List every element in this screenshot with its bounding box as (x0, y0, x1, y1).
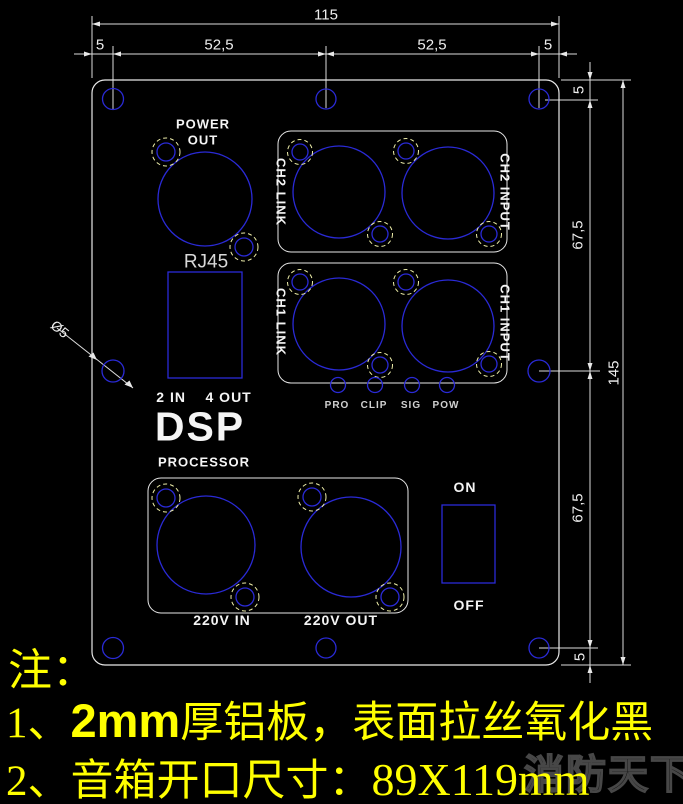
ch2-connector-group (278, 131, 507, 252)
led-label-sig: SIG (401, 401, 421, 411)
screw-hole (236, 588, 254, 606)
v220-in-label: 220V IN (193, 613, 251, 627)
arrowhead (588, 665, 593, 673)
dim-top-right-span: 52,5 (417, 38, 446, 53)
led-label-pow: POW (433, 401, 460, 411)
led-hole-clip (368, 378, 383, 393)
screw-hole-dashed (298, 483, 326, 511)
arrowhead (588, 100, 593, 108)
note1-text: 厚铝板，表面拉丝氧化黑 (180, 700, 653, 747)
dim-top-left-margin: 5 (96, 38, 104, 53)
arrowhead (559, 52, 567, 57)
screw-hole-dashed (152, 484, 180, 512)
ch1-link-label: CH1 LINK (275, 288, 288, 356)
leader-arrowhead (125, 381, 134, 389)
arrowhead (551, 22, 559, 27)
note-line-1: 1、2mm厚铝板，表面拉丝氧化黑 (6, 688, 653, 750)
arrowhead (621, 657, 626, 665)
screw-hole (398, 143, 414, 159)
screw-hole (235, 238, 253, 256)
led-label-pro: PRO (325, 401, 350, 411)
screw-hole-dashed (288, 270, 313, 295)
processor-label: PROCESSOR (158, 456, 250, 469)
rj45-cutout (168, 272, 242, 378)
rj45-label: RJ45 (184, 253, 228, 272)
arrowhead (588, 363, 593, 371)
ch2-link-label: CH2 LINK (275, 158, 288, 226)
screw-hole-dashed (394, 139, 419, 164)
screw-hole-dashed (288, 140, 313, 165)
arrowhead (326, 52, 334, 57)
note2-size-value: 89X119mm (372, 754, 590, 804)
led-label-clip: CLIP (361, 401, 388, 411)
arrowhead (318, 52, 326, 57)
arrowhead (531, 52, 539, 57)
ch2-link-xlr-cutout (293, 146, 385, 238)
dim-right-bottom-margin: 5 (573, 653, 588, 661)
ch1-input-label: CH1 INPUT (499, 284, 512, 362)
arrowhead (113, 52, 121, 57)
v220-out-label: 220V OUT (304, 613, 378, 627)
power-out-connector (152, 138, 258, 261)
screw-hole (398, 274, 414, 290)
screw-hole-dashed (152, 138, 180, 166)
power-out-label-line1: POWER (176, 118, 230, 131)
mounting-hole-mid-left (102, 360, 124, 382)
screw-hole-dashed (394, 270, 419, 295)
arrowhead (588, 72, 593, 80)
screw-hole (381, 588, 399, 606)
ch1-input-xlr-cutout (402, 280, 494, 372)
led-holes (331, 378, 455, 393)
xlr-cutout (158, 152, 252, 246)
note1-number: 1、 (6, 700, 71, 747)
dimension-lines (57, 16, 631, 683)
ch1-connector-group (278, 263, 507, 383)
screw-hole (157, 489, 175, 507)
arrowhead (84, 52, 92, 57)
screw-hole (372, 357, 388, 373)
led-hole-pro (331, 378, 346, 393)
note1-thickness: 2mm (71, 694, 181, 747)
dim-right-total: 145 (607, 360, 622, 385)
cad-drawing-canvas: 115 5 52,5 52,5 5 5 67,5 145 67,5 5 Ø5 P… (0, 0, 683, 804)
power-connector-group (148, 478, 408, 613)
screw-hole-dashed (231, 583, 259, 611)
led-hole-sig (405, 378, 420, 393)
screw-hole (481, 356, 497, 372)
dim-top-left-span: 52,5 (204, 38, 233, 53)
power-switch-cutout (442, 505, 495, 583)
note2-text: 音箱开口尺寸： (71, 758, 372, 804)
screw-hole (292, 274, 308, 290)
dim-right-upper-span: 67,5 (571, 220, 586, 249)
switch-on-label: ON (454, 480, 477, 494)
dim-right-lower-span: 67,5 (571, 493, 586, 522)
mounting-hole-bottom-center (316, 638, 336, 658)
screw-hole (372, 226, 388, 242)
ch2-input-xlr-cutout (402, 147, 494, 239)
switch-off-label: OFF (454, 598, 485, 612)
mounting-holes (102, 89, 550, 659)
dsp-label: DSP (155, 407, 245, 448)
ch1-link-xlr-cutout (293, 278, 385, 370)
io-count-label: 2 IN 4 OUT (156, 390, 251, 404)
arrowhead (92, 22, 100, 27)
note2-number: 2、 (6, 758, 71, 804)
screw-hole-dashed (230, 233, 258, 261)
screw-hole (157, 143, 175, 161)
arrowhead (621, 80, 626, 88)
screw-hole (481, 226, 497, 242)
dimension-arrowheads (84, 22, 626, 674)
dim-top-right-margin: 5 (544, 38, 552, 53)
dim-right-top-margin: 5 (572, 86, 587, 94)
arrowhead (588, 640, 593, 648)
dim-top-total: 115 (314, 8, 338, 23)
ch2-input-label: CH2 INPUT (499, 153, 512, 231)
v220-out-cutout (301, 497, 401, 597)
led-hole-pow (440, 378, 455, 393)
mounting-hole-bottom-left (103, 638, 124, 659)
power-out-label-line2: OUT (188, 134, 218, 147)
screw-hole (303, 488, 321, 506)
arrowhead (588, 371, 593, 379)
note-line-2: 2、音箱开口尺寸：89X119mm (6, 746, 590, 804)
power-group-outline (148, 478, 408, 613)
screw-hole (292, 144, 308, 160)
